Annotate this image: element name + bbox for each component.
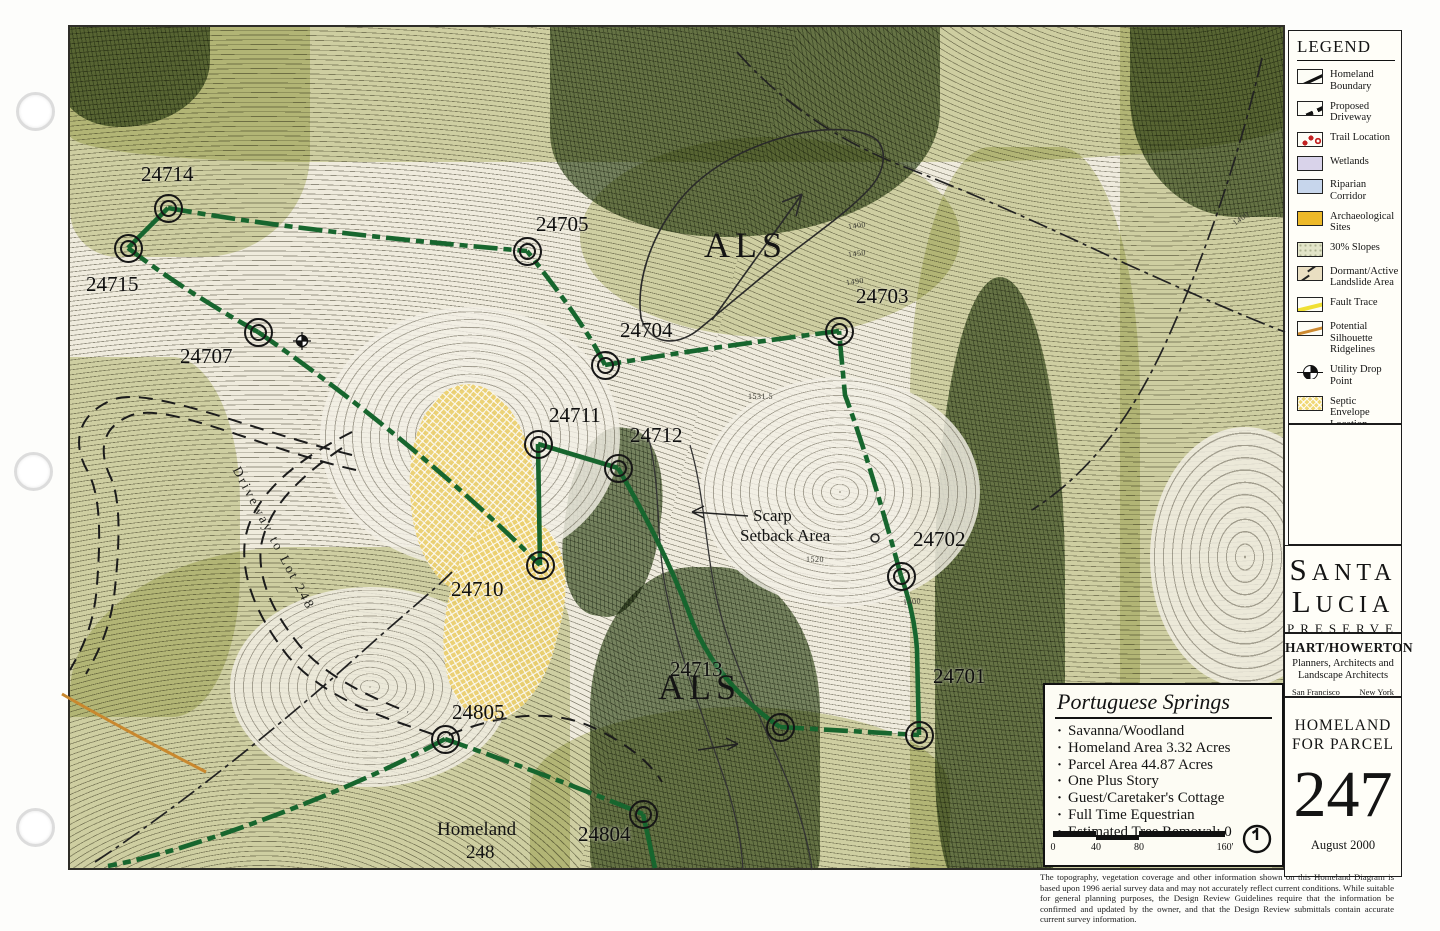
legend-item: Wetlands	[1297, 156, 1395, 171]
firm-city-left: San Francisco	[1292, 687, 1340, 697]
firm-city-right: New York	[1360, 687, 1394, 697]
parcel-info-bullet: Homeland Area 3.32 Acres	[1055, 740, 1272, 757]
disclaimer-text: The topography, vegetation coverage and …	[1040, 872, 1394, 925]
legend-title: LEGEND	[1297, 37, 1395, 61]
slopes-swatch-icon	[1297, 242, 1323, 257]
scale-tick-label: 0	[1051, 842, 1056, 853]
firm-subtitle: Planners, Architects and Landscape Archi…	[1285, 658, 1401, 682]
fault-swatch-icon	[1297, 297, 1323, 312]
firm-name: HART/HOWERTON	[1285, 640, 1401, 656]
legend-item-label: Fault Trace	[1330, 297, 1378, 309]
parcel-info-bullet: Parcel Area 44.87 Acres	[1055, 757, 1272, 774]
empty-panel	[1288, 424, 1402, 545]
scale-row: 04080160'	[1053, 829, 1275, 859]
ridgelines-swatch-icon	[1297, 321, 1323, 336]
riparian-swatch-icon	[1297, 179, 1323, 194]
legend-item: Proposed Driveway	[1297, 101, 1395, 124]
utility-swatch-icon	[1297, 364, 1323, 379]
legend-item: Potential Silhouette Ridgelines	[1297, 321, 1395, 356]
legend-item-label: Potential Silhouette Ridgelines	[1330, 321, 1395, 356]
hole-punch	[16, 92, 55, 131]
legend-item-label: Wetlands	[1330, 156, 1369, 168]
trail-location-swatch-icon	[1297, 132, 1323, 147]
hole-punch	[14, 452, 53, 491]
parcel-info-bullet: One Plus Story	[1055, 773, 1272, 790]
parcel-info-list: Savanna/WoodlandHomeland Area 3.32 Acres…	[1055, 723, 1272, 841]
sheet-title-block: HOMELAND FOR PARCEL 247 August 2000	[1284, 697, 1402, 877]
parcel-info-box: Portuguese Springs Savanna/WoodlandHomel…	[1043, 683, 1284, 867]
legend-item-label: Homeland Boundary	[1330, 69, 1395, 92]
scale-tick-label: 40	[1091, 842, 1101, 853]
scale-tick-label: 80	[1134, 842, 1144, 853]
scale-tick-label: 160'	[1217, 842, 1234, 853]
legend-item: Dormant/Active Landslide Area	[1297, 266, 1395, 289]
preserve-brand-block: SANTA LUCIA PRESERVE	[1284, 545, 1402, 633]
firm-block: HART/HOWERTON Planners, Architects and L…	[1284, 633, 1402, 697]
proposed-driveway-swatch-icon	[1297, 101, 1323, 116]
parcel-info-bullet: Guest/Caretaker's Cottage	[1055, 790, 1272, 807]
legend-item: Riparian Corridor	[1297, 179, 1395, 202]
homeland-boundary-swatch-icon	[1297, 69, 1323, 84]
legend-item-label: Archaeological Sites	[1330, 211, 1395, 234]
north-arrow-icon	[1241, 823, 1273, 855]
contour-bowl	[700, 377, 980, 607]
legend-item-label: 30% Slopes	[1330, 242, 1380, 254]
firm-cities: San Francisco New York	[1285, 682, 1401, 697]
brand-line: LUCIA	[1285, 586, 1401, 618]
septic-swatch-icon	[1297, 396, 1323, 411]
legend-item-label: Riparian Corridor	[1330, 179, 1395, 202]
legend-item: Archaeological Sites	[1297, 211, 1395, 234]
legend-item: Fault Trace	[1297, 297, 1395, 312]
parcel-info-title: Portuguese Springs	[1055, 689, 1272, 719]
wetlands-swatch-icon	[1297, 156, 1323, 171]
homeland-diagram-page: { "map": { "parcel_labels": [ {"id": "24…	[0, 0, 1440, 931]
scale-baseline	[1053, 835, 1225, 837]
legend-panel: LEGEND Homeland BoundaryProposed Drivewa…	[1288, 30, 1402, 424]
legend-item: Homeland Boundary	[1297, 69, 1395, 92]
ravine-area	[590, 567, 820, 870]
legend-item-label: Proposed Driveway	[1330, 101, 1395, 124]
legend-item: Utility Drop Point	[1297, 364, 1395, 387]
parcel-info-bullet: Savanna/Woodland	[1055, 723, 1272, 740]
parcel-number: 247	[1285, 761, 1401, 828]
sheet-title-line: HOMELAND	[1285, 716, 1401, 735]
scale-bar: 04080160'	[1053, 829, 1225, 841]
hole-punch	[16, 808, 55, 847]
legend-items: Homeland BoundaryProposed DrivewayTrail …	[1297, 69, 1395, 430]
sheet-title-line: FOR PARCEL	[1285, 735, 1401, 754]
parcel-info-bullet: Full Time Equestrian	[1055, 807, 1272, 824]
legend-item-label: Trail Location	[1330, 132, 1390, 144]
brand-line: SANTA	[1285, 554, 1401, 586]
legend-item: 30% Slopes	[1297, 242, 1395, 257]
legend-item-label: Dormant/Active Landslide Area	[1330, 266, 1398, 289]
legend-item-label: Utility Drop Point	[1330, 364, 1395, 387]
archaeological-swatch-icon	[1297, 211, 1323, 226]
legend-item: Trail Location	[1297, 132, 1395, 147]
map-date: August 2000	[1285, 838, 1401, 853]
landslide-swatch-icon	[1297, 266, 1323, 281]
